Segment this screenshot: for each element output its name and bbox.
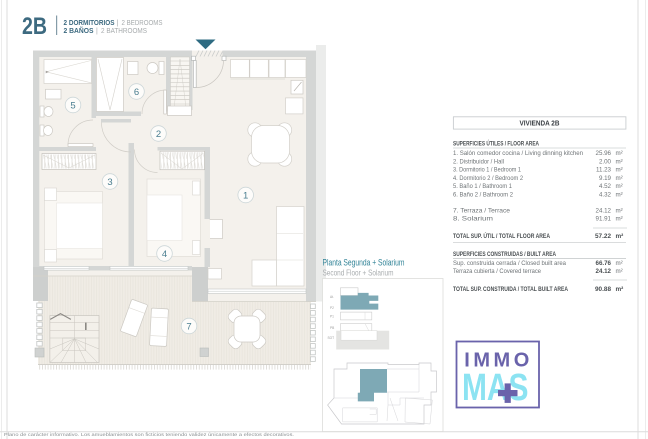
svg-text:m²: m² <box>616 207 623 214</box>
svg-text:VIVIENDA 2B: VIVIENDA 2B <box>520 120 560 127</box>
svg-text:TOTAL SUP. ÚTIL / TOTAL FLOOR: TOTAL SUP. ÚTIL / TOTAL FLOOR AREA <box>453 231 550 240</box>
svg-text:|: | <box>96 28 98 35</box>
svg-text:4. Dormitorio 2 / Bedroom 2: 4. Dormitorio 2 / Bedroom 2 <box>453 175 524 182</box>
svg-text:4.32: 4.32 <box>599 192 612 199</box>
svg-text:90.88: 90.88 <box>595 286 611 293</box>
svg-text:m²: m² <box>616 233 624 240</box>
svg-text:91.91: 91.91 <box>596 216 612 223</box>
svg-text:Sup. construida cerrada / Clos: Sup. construida cerrada / Closed built a… <box>453 260 567 267</box>
svg-text:m²: m² <box>616 192 623 199</box>
svg-text:7: 7 <box>186 321 191 332</box>
svg-text:24.12: 24.12 <box>596 268 612 275</box>
svg-text:7. Terraza / Terrace: 7. Terraza / Terrace <box>453 207 511 214</box>
svg-text:2 DORMITORIOS: 2 DORMITORIOS <box>64 20 115 27</box>
svg-text:9.19: 9.19 <box>599 175 612 182</box>
svg-text:66.76: 66.76 <box>596 260 612 267</box>
svg-text:6. Baño 2 / Bathroom 2: 6. Baño 2 / Bathroom 2 <box>453 192 514 199</box>
svg-text:2B: 2B <box>22 13 47 40</box>
svg-text:SUPERFICIES CONSTRUIDAS / BUIL: SUPERFICIES CONSTRUIDAS / BUILT AREA <box>453 251 556 258</box>
svg-text:SUPERFICIES ÚTILES / FLOOR ARE: SUPERFICIES ÚTILES / FLOOR AREA <box>453 139 539 148</box>
svg-text:At.: At. <box>330 295 334 299</box>
svg-text:m²: m² <box>616 216 623 223</box>
svg-text:P2: P2 <box>330 306 334 310</box>
svg-text:5: 5 <box>70 100 75 111</box>
svg-text:5. Baño 1 / Bathroom 1: 5. Baño 1 / Bathroom 1 <box>453 183 513 190</box>
svg-text:4: 4 <box>162 249 167 260</box>
svg-text:4.52: 4.52 <box>599 183 612 190</box>
svg-text:2: 2 <box>156 129 161 140</box>
svg-text:m²: m² <box>616 183 623 190</box>
svg-text:PB: PB <box>330 326 334 330</box>
svg-text:Second Floor + Solarium: Second Floor + Solarium <box>323 268 394 278</box>
svg-text:Terraza cubierta / Covered ter: Terraza cubierta / Covered terrace <box>453 268 542 275</box>
svg-text:m²: m² <box>616 150 623 157</box>
svg-text:2. Distribuidor / Hall: 2. Distribuidor / Hall <box>453 158 504 165</box>
svg-text:3. Dormitorio 1 / Bedroom 1: 3. Dormitorio 1 / Bedroom 1 <box>453 167 521 174</box>
svg-text:3: 3 <box>107 177 112 188</box>
svg-text:Plano de carácter informativo.: Plano de carácter informativo. Los amueb… <box>4 432 294 437</box>
svg-text:2.00: 2.00 <box>599 158 612 165</box>
svg-text:6: 6 <box>134 87 139 98</box>
svg-text:Planta Segunda + Solarium: Planta Segunda + Solarium <box>323 258 405 268</box>
svg-text:57.22: 57.22 <box>595 233 611 240</box>
svg-text:1. Salón comedor cocina / Livi: 1. Salón comedor cocina / Living dinning… <box>453 150 584 157</box>
svg-text:2 BEDROOMS: 2 BEDROOMS <box>122 20 163 27</box>
svg-text:24.12: 24.12 <box>596 207 612 214</box>
svg-text:m²: m² <box>616 167 623 174</box>
svg-text:1: 1 <box>243 190 248 201</box>
svg-text:2 BATHROOMS: 2 BATHROOMS <box>101 28 147 35</box>
svg-text:m²: m² <box>616 286 624 293</box>
svg-text:TOTAL SUP. CONSTRUIDA / TOTAL: TOTAL SUP. CONSTRUIDA / TOTAL BUILT AREA <box>453 286 568 293</box>
svg-text:11.23: 11.23 <box>596 167 612 174</box>
svg-text:25.96: 25.96 <box>596 150 612 157</box>
svg-text:MAS: MAS <box>462 367 529 409</box>
svg-text:|: | <box>117 20 119 27</box>
svg-text:m²: m² <box>616 158 623 165</box>
svg-text:8. Solarium: 8. Solarium <box>453 216 493 223</box>
svg-text:P1: P1 <box>330 315 334 319</box>
svg-text:m²: m² <box>616 268 623 275</box>
svg-text:m²: m² <box>616 260 623 267</box>
svg-text:m²: m² <box>616 175 623 182</box>
svg-text:2 BAÑOS: 2 BAÑOS <box>64 26 94 35</box>
svg-text:SOT: SOT <box>328 336 335 340</box>
